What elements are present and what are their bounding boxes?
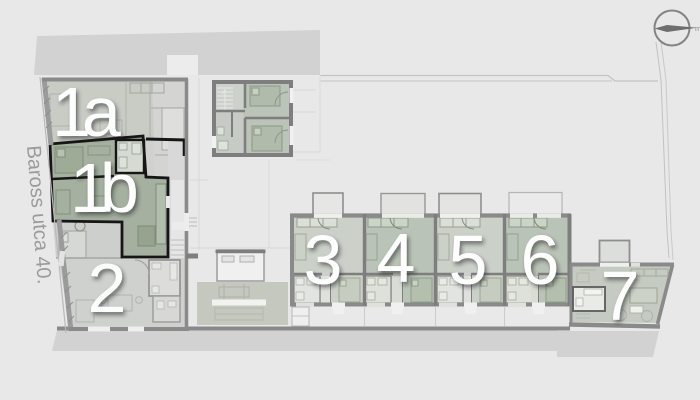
svg-text:1a: 1a	[52, 73, 121, 151]
svg-text:1b: 1b	[70, 149, 136, 227]
svg-text:7: 7	[601, 257, 640, 335]
svg-text:4: 4	[377, 219, 416, 297]
svg-text:2: 2	[88, 249, 127, 327]
svg-text:m: m	[695, 24, 700, 33]
svg-text:6: 6	[521, 221, 560, 299]
svg-text:3: 3	[304, 221, 343, 299]
svg-text:5: 5	[449, 221, 488, 299]
